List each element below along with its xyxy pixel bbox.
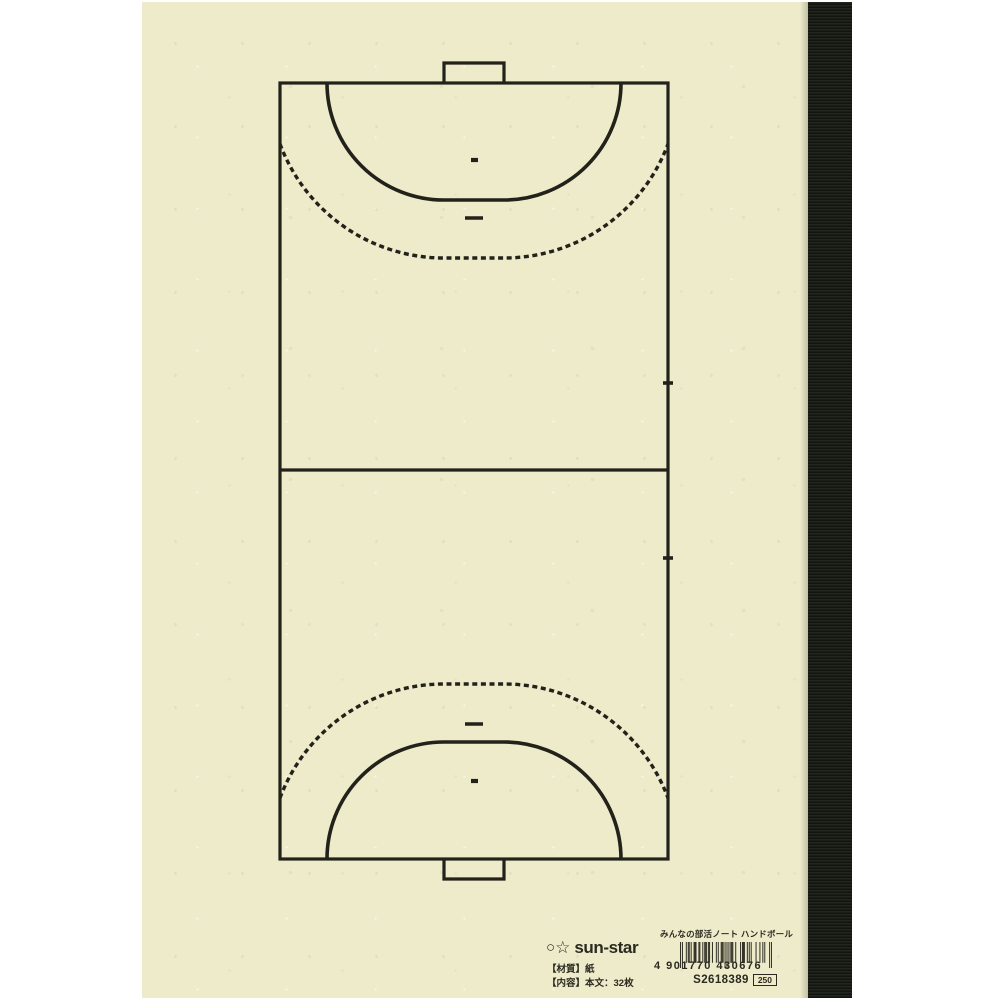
price-code-box: 250 xyxy=(753,974,777,986)
product-code-row: S2618389 250 xyxy=(693,974,777,986)
sun-circle-icon: ○ xyxy=(546,938,555,957)
contents-spec-line: 【内容】本文：32枚 xyxy=(547,975,634,989)
cover-paper: ○ ☆ sun-star 【材質】紙 【内容】本文：32枚 みんなの部活ノート … xyxy=(142,2,808,998)
product-title: みんなの部活ノート ハンドボール xyxy=(660,928,793,940)
handball-court-diagram xyxy=(142,2,808,998)
ean-barcode: 4 901770 430676 S2618389 250 xyxy=(654,941,780,989)
material-spec-line: 【材質】紙 xyxy=(547,961,595,975)
product-photo-page: { "colors": { "background": "#ffffff", "… xyxy=(0,0,1000,1000)
goal-box-bottom xyxy=(444,859,504,879)
brand-logo: ○ ☆ sun-star xyxy=(546,938,638,957)
star-icon: ☆ xyxy=(555,938,570,957)
brand-logotype: sun-star xyxy=(574,938,638,957)
barcode-digits: 4 901770 430676 xyxy=(654,960,776,972)
goal-box-top xyxy=(444,63,504,83)
goal-area-line-bottom xyxy=(327,742,621,859)
goal-area-line-top xyxy=(327,83,621,200)
notebook-back-cover: ○ ☆ sun-star 【材質】紙 【内容】本文：32枚 みんなの部活ノート … xyxy=(142,2,852,998)
product-code: S2618389 xyxy=(693,974,749,986)
notebook-spine-binding xyxy=(808,2,852,998)
